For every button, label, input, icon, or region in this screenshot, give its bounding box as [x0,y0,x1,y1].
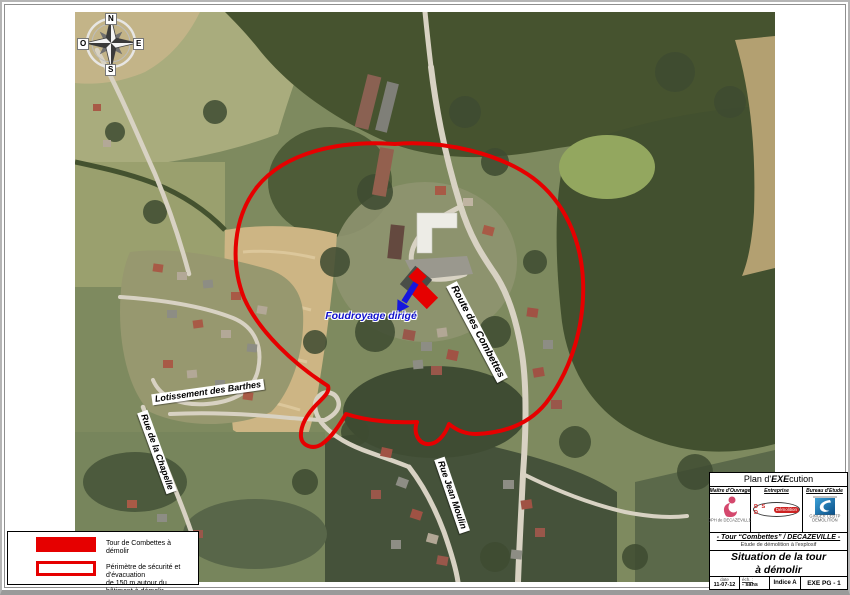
legend-perimeter-line2: de 150 m autour du bâtiment à démolir [106,580,194,595]
drawing-title: Situation de la tour à démolir [710,551,847,577]
legend-label-tower: Tour de Combettes à démolir [106,537,194,556]
title-block-footer: date 11-07-12 éch. : - sans Indice A EXE… [710,577,847,589]
dsd-demolition-logo: D S D Démolition [753,502,800,517]
entreprise-header: Entreprise [764,488,789,494]
aerial-photo: N O E S Route des Combettes Lotissement … [75,12,775,582]
header-suffix: cution [789,474,813,484]
project-subtitle: Etude de démolition à l'explosif [710,542,847,549]
ginger-caption-line2: DEMOLITION [812,518,838,523]
header-prefix: Plan d' [744,474,771,484]
drawing-ref-value: EXE PG - 1 [807,580,841,587]
indice-cell: Indice A [769,577,800,589]
date-value: 11-07-12 [714,582,736,589]
drawing-ref-cell: EXE PG - 1 [800,577,847,589]
oph-logo-icon [720,494,740,519]
compass-east-label: E [133,38,144,50]
legend-perimeter-line1: Périmètre de sécurité et d'évacuation [106,564,180,579]
scale-value: - sans [742,582,758,589]
dsd-logo-text: D S D [754,504,773,516]
date-cell: date 11-07-12 [710,577,739,589]
compass-north-label: N [105,13,117,25]
legend-label-perimeter: Périmètre de sécurité et d'évacuation de… [106,561,194,595]
bureau-etude-header: Bureau d'Etude [806,488,843,494]
oph-caption: OPH de DECAZEVILLE [708,519,752,523]
drawing-title-line1: Situation de la tour [710,551,847,564]
legend-swatch-perimeter [36,561,96,576]
column-bureau-etude: Bureau d'Etude GINGER CEBTP DEMOLITION [803,487,846,532]
plan-sheet: N O E S Route des Combettes Lotissement … [0,0,850,595]
column-maitre-ouvrage: Maître d'Ouvrage OPH de DECAZEVILLE [710,487,751,532]
title-block-header: Plan d'EXEcution [710,473,847,487]
header-exe: EXE [771,474,789,484]
ginger-logo-icon [815,498,835,515]
legend-item-tower: Tour de Combettes à démolir [36,537,194,556]
compass-west-label: O [77,38,89,50]
drawing-title-line2: à démolir [710,564,847,577]
scale-cell: éch. : - sans [739,577,769,589]
indice-value: Indice A [773,580,796,586]
dsd-logo-subtext: Démolition [774,507,799,513]
foudroyage-dirige-label: Foudroyage dirigé [325,310,417,322]
legend: Tour de Combettes à démolir Périmètre de… [7,531,199,585]
ginger-caption: GINGER CEBTP DEMOLITION [809,515,840,523]
title-block: Plan d'EXEcution Maître d'Ouvrage OPH de… [709,472,848,590]
project-row: - Tour “Combettes” / DECAZEVILLE - Etude… [710,533,847,551]
project-name: - Tour “Combettes” / DECAZEVILLE - [710,533,847,542]
legend-item-perimeter: Périmètre de sécurité et d'évacuation de… [36,561,194,595]
title-block-logos-row: Maître d'Ouvrage OPH de DECAZEVILLE Entr… [710,487,847,533]
column-entreprise: Entreprise D S D Démolition [751,487,803,532]
aerial-photo-graphic [75,12,775,582]
legend-swatch-tower [36,537,96,552]
compass-south-label: S [105,64,116,76]
